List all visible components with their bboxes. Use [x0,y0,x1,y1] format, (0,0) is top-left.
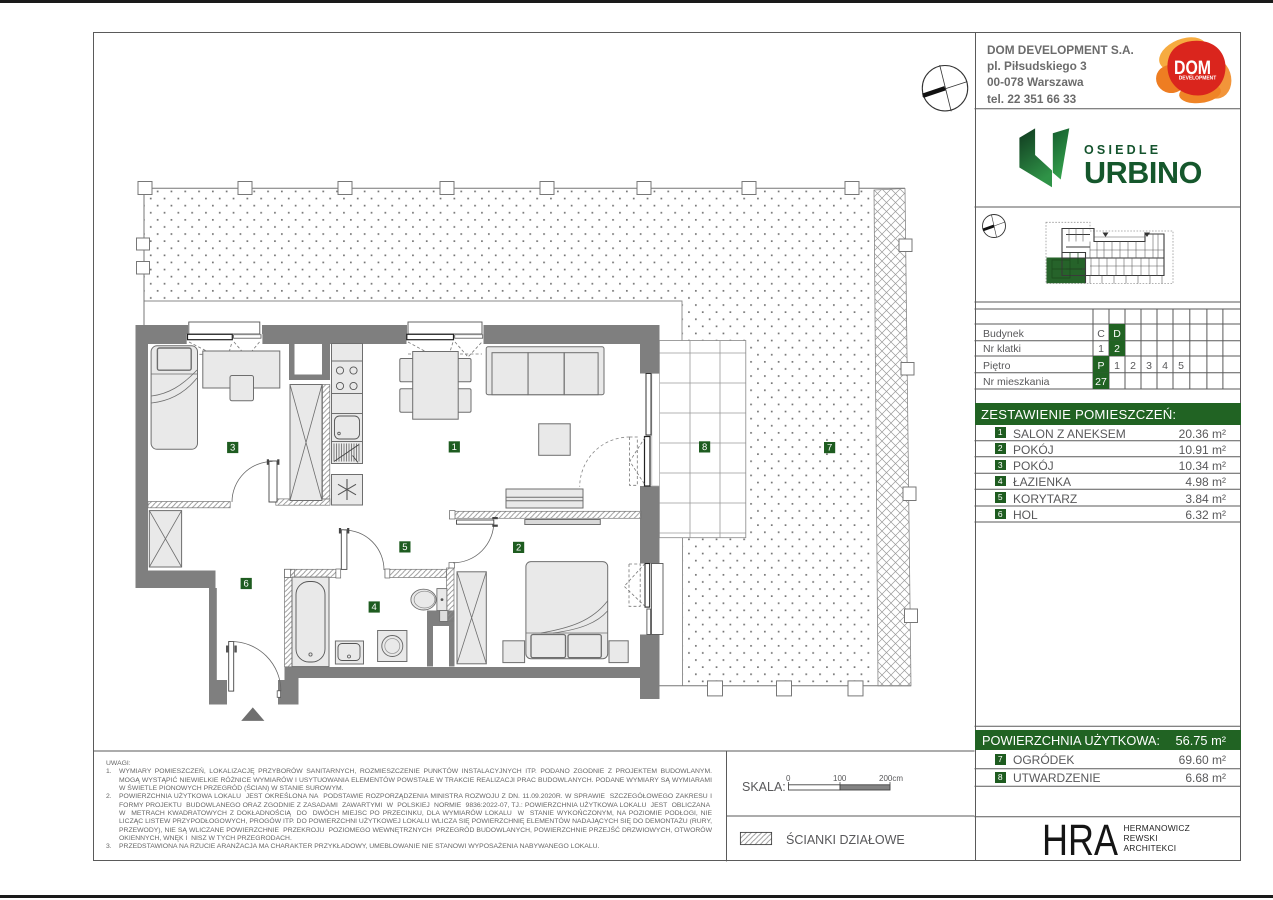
svg-text:4: 4 [372,602,377,613]
svg-text:7: 7 [827,443,832,454]
svg-text:3: 3 [230,443,235,454]
svg-text:8: 8 [702,442,707,453]
svg-text:6: 6 [244,579,249,590]
svg-text:1: 1 [452,442,457,453]
svg-text:5: 5 [402,542,407,553]
svg-text:DEVELOPMENT: DEVELOPMENT [1179,75,1217,81]
svg-text:2: 2 [516,543,521,554]
svg-text:HRA: HRA [1042,816,1119,865]
